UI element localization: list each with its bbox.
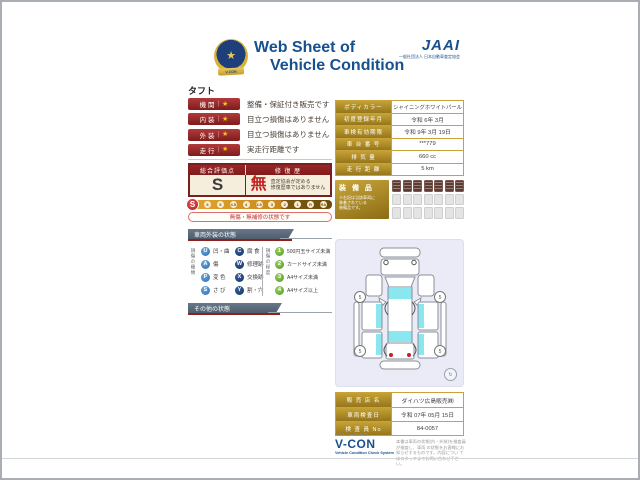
star-icon: ★ <box>222 146 228 153</box>
damage-type-label: 損傷の種類 <box>190 248 196 294</box>
jaai-subtext: 一般社団法人 日本自動車査定協会 <box>399 54 460 60</box>
damage-code-icon: X <box>235 273 244 282</box>
legend-label: 変 色 <box>213 273 226 281</box>
degree-code-icon: 4 <box>275 286 284 295</box>
tire-mark-value: 5 <box>439 349 442 355</box>
car-diagram-panel: 5 5 5 5 ↻ <box>335 239 464 387</box>
rating-label: 走 行|★ <box>188 144 240 156</box>
rear-bumper <box>380 361 420 369</box>
footer-disclaimer: 本書は車両の状態(内・外装)を検査員が検査し、車両 の状態をお客様にお知らせする… <box>396 439 466 467</box>
divider: | <box>217 101 219 107</box>
legend-item: 4A4サイズ以上 <box>275 285 330 295</box>
equipment-badge <box>424 180 433 192</box>
damage-code-icon: P <box>201 273 210 282</box>
badge-star-icon: ★ <box>226 51 236 62</box>
dealer-info-table: 販 売 店 名ダイハツ広島販売㈱ 車両検査日令和 07年 05月 15日 検 査… <box>335 392 464 436</box>
rating-label-text: 外 装 <box>200 130 215 140</box>
star-icon: ★ <box>222 101 228 108</box>
equipment-badge-empty <box>403 207 412 219</box>
equipment-badge <box>403 180 412 192</box>
evaluation-header: 総合評価点 修 復 歴 <box>190 165 330 175</box>
current-score-marker: S <box>186 198 199 211</box>
table-row: 車 台 番 号***779 <box>336 138 463 151</box>
rating-label: 内 装|★ <box>188 113 240 125</box>
legend-item: 2カードサイズ未満 <box>275 259 330 269</box>
front-window-glass <box>389 288 412 299</box>
taillight-icon <box>389 353 393 357</box>
jaai-logo: JAAI <box>422 37 460 54</box>
row-label: 車両検査日 <box>336 408 391 421</box>
front-bumper <box>380 248 420 257</box>
scale-dot: 4 <box>243 201 250 208</box>
other-section-banner: その他の状態 <box>188 303 332 313</box>
taillight-icon <box>407 353 411 357</box>
equipment-badge-empty <box>413 194 422 206</box>
damage-degree-label: 損傷の程度 <box>265 248 271 294</box>
rotate-icon[interactable]: ↻ <box>444 368 457 381</box>
equipment-badge-empty <box>424 194 433 206</box>
rear-window-glass <box>389 331 412 342</box>
damage-type-col2: C腐 食 W修理跡 X交換跡 Y割・穴 <box>235 246 264 295</box>
degree-code-icon: 3 <box>275 273 284 282</box>
table-row: 車検有効期限令和 9年 3月 19日 <box>336 125 463 138</box>
equipment-badge-empty <box>445 194 454 206</box>
scale-dot: 5 <box>217 201 224 208</box>
vcon-tagline: Vehicle Condition Check System <box>335 451 394 455</box>
rating-label-text: 内 装 <box>200 114 215 124</box>
legend-item: A傷 <box>201 259 230 269</box>
repair-history-note: 査定協会が定める 修復歴車ではありません <box>271 179 326 192</box>
vcon-logo: V-CON <box>335 437 376 451</box>
legend-item: Sさ び <box>201 285 230 295</box>
scale-dot: 2 <box>281 201 288 208</box>
damage-code-icon: U <box>201 247 210 256</box>
equipment-badge <box>445 180 454 192</box>
front-fender-right <box>418 275 434 296</box>
damage-code-icon: A <box>201 260 210 269</box>
scale-dot: 3 <box>268 201 275 208</box>
rating-label-text: 走 行 <box>200 145 215 155</box>
scale-dot: 6 <box>204 201 211 208</box>
vehicle-condition-sheet: ★ V-CON Web Sheet of Vehicle Condition J… <box>0 0 640 480</box>
exterior-section-banner: 車両外装の状態 <box>188 229 332 239</box>
car-diagram: 5 5 5 5 <box>350 247 450 379</box>
rating-row-interior: 内 装|★ 目立つ損傷はありません <box>188 113 332 125</box>
table-row: 販 売 店 名ダイハツ広島販売㈱ <box>336 393 463 407</box>
dealer-name-value: ダイハツ広島販売㈱ <box>391 393 463 407</box>
tire-mark-value: 5 <box>359 349 362 355</box>
equipment-badge-empty <box>455 194 464 206</box>
equipment-badge-empty <box>455 207 464 219</box>
scale-dot: 1 <box>294 201 301 208</box>
rating-comment: 実走行距離です <box>247 144 332 155</box>
damage-degree-list: 1500円玉サイズ未満 2カードサイズ未満 3A4サイズ未満 4A4サイズ以上 <box>275 246 330 295</box>
damage-code-icon: W <box>235 260 244 269</box>
damage-code-icon: Y <box>235 286 244 295</box>
vehicle-info-table: ボディカラーシャイニングホワイトパール 初度登録年月令和 6年 3月 車検有効期… <box>335 100 464 176</box>
degree-code-icon: 2 <box>275 260 284 269</box>
tire-mark-value: 5 <box>439 295 442 301</box>
equipment-badge-empty <box>434 194 443 206</box>
table-row: ボディカラーシャイニングホワイトパール <box>336 101 463 113</box>
legend-label: さ び <box>213 286 226 294</box>
scale-dot: RA <box>320 201 327 208</box>
equipment-badge <box>455 180 464 192</box>
equipment-badges <box>392 180 464 219</box>
sheet-title-line2: Vehicle Condition <box>270 57 404 75</box>
first-registration-value: 令和 6年 3月 <box>391 114 463 126</box>
rating-label-text: 機 関 <box>200 99 215 109</box>
rating-comment: 整備・保証付き販売です <box>247 99 332 110</box>
rating-label: 外 装|★ <box>188 129 240 141</box>
legend-item: C腐 食 <box>235 246 264 256</box>
overall-score-header: 総合評価点 <box>190 165 246 175</box>
legend-item: W修理跡 <box>235 259 264 269</box>
banner-underline <box>188 313 280 315</box>
divider: | <box>217 116 219 122</box>
table-row: 走 行 距 離5 km <box>336 163 463 176</box>
row-label: 車 台 番 号 <box>336 139 391 151</box>
legend-item: 1500円玉サイズ未満 <box>275 246 330 256</box>
scale-dot: R <box>307 201 314 208</box>
tire-mark-value: 5 <box>359 295 362 301</box>
equipment-badge-empty <box>392 207 401 219</box>
front-fender-left <box>366 275 382 296</box>
condition-note-pill: 無傷・無補修の状態です <box>188 212 332 222</box>
row-label: 初度登録年月 <box>336 114 391 126</box>
rating-comment: 目立つ損傷はありません <box>247 114 332 125</box>
equipment-badge-empty <box>403 194 412 206</box>
star-icon: ★ <box>222 116 228 123</box>
legend-label: 腐 食 <box>247 247 260 255</box>
overall-score-value: S <box>190 175 246 195</box>
rating-rows: 機 関|★ 整備・保証付き販売です 内 装|★ 目立つ損傷はありません 外 装|… <box>188 98 332 156</box>
repair-history-value: 無 <box>251 177 267 193</box>
sheet-title-line1: Web Sheet of <box>254 39 355 57</box>
equipment-title: 装 備 品 <box>339 183 385 193</box>
mileage-value: 5 km <box>391 164 463 176</box>
headlight-icon <box>384 260 388 264</box>
windshield <box>385 277 415 287</box>
score-scale-bar: 6 5 4.5 4 3.5 3 2 1 R RA <box>188 200 332 209</box>
row-label: 走 行 距 離 <box>336 164 391 176</box>
legend-label: 500円玉サイズ未満 <box>287 248 330 255</box>
vehicle-name: タフト <box>188 84 215 97</box>
inspection-date-value: 令和 07年 05月 15日 <box>391 408 463 421</box>
damage-code-icon: C <box>235 247 244 256</box>
legend-label: 傷 <box>213 260 219 268</box>
legend-label: A4サイズ未満 <box>287 274 318 281</box>
bottom-rule <box>2 458 638 459</box>
inspection-expiry-value: 令和 9年 3月 19日 <box>391 126 463 138</box>
inspector-number-value: 84-0057 <box>391 422 463 435</box>
equipment-note: ※右記は当該車両に 装着されている 装備品です。 <box>339 195 385 210</box>
door-window-glass <box>376 304 382 328</box>
door-window-glass <box>419 304 425 328</box>
equipment-label-box: 装 備 品 ※右記は当該車両に 装着されている 装備品です。 <box>335 180 389 219</box>
chassis-number-value: ***779 <box>391 139 463 151</box>
rating-row-mileage: 走 行|★ 実走行距離です <box>188 144 332 156</box>
equipment-note-line: 装備品です。 <box>339 205 363 210</box>
legend-item: Y割・穴 <box>235 285 264 295</box>
legend-divider <box>262 247 263 296</box>
legend-item: X交換跡 <box>235 272 264 282</box>
repair-note-line2: 修復歴車ではありません <box>271 185 326 191</box>
row-label: 車検有効期限 <box>336 126 391 138</box>
equipment-badge-empty <box>424 207 433 219</box>
evaluation-body: S 無 査定協会が定める 修復歴車ではありません <box>190 175 330 195</box>
table-row: 車両検査日令和 07年 05月 15日 <box>336 407 463 421</box>
equipment-badge-empty <box>392 194 401 206</box>
equipment-badge-empty <box>413 207 422 219</box>
repair-note-line1: 査定協会が定める <box>271 179 311 185</box>
rating-comment: 目立つ損傷はありません <box>247 129 332 140</box>
equipment-badge-empty <box>434 207 443 219</box>
star-icon: ★ <box>222 131 228 138</box>
degree-code-icon: 1 <box>275 247 284 256</box>
banner-underline <box>188 239 292 241</box>
table-row: 初度登録年月令和 6年 3月 <box>336 113 463 126</box>
legend-item: U凹・曲 <box>201 246 230 256</box>
equipment-badge <box>434 180 443 192</box>
legend-label: カードサイズ未満 <box>287 261 327 268</box>
row-label: 排 気 量 <box>336 151 391 163</box>
rating-row-exterior: 外 装|★ 目立つ損傷はありません <box>188 129 332 141</box>
row-label: ボディカラー <box>336 101 391 113</box>
table-row: 排 気 量660 cc <box>336 150 463 163</box>
repair-history-cell: 無 査定協会が定める 修復歴車ではありません <box>246 175 330 195</box>
body-color-value: シャイニングホワイトパール <box>391 101 463 113</box>
row-label: 販 売 店 名 <box>336 393 391 407</box>
displacement-value: 660 cc <box>391 151 463 163</box>
door-window-glass <box>419 334 425 355</box>
divider: | <box>217 132 219 138</box>
headlight-icon <box>412 260 416 264</box>
evaluation-table: 総合評価点 修 復 歴 S 無 査定協会が定める 修復歴車ではありません <box>188 163 332 197</box>
badge-ribbon: V-CON <box>218 67 244 75</box>
legend-item: P変 色 <box>201 272 230 282</box>
divider: | <box>217 147 219 153</box>
damage-type-col1: U凹・曲 A傷 P変 色 Sさ び <box>201 246 230 295</box>
legend-item: 3A4サイズ未満 <box>275 272 330 282</box>
equipment-badge <box>413 180 422 192</box>
divider-rule <box>188 159 332 160</box>
repair-history-header: 修 復 歴 <box>246 165 330 175</box>
exterior-section-title: 車両外装の状態 <box>188 229 294 239</box>
rating-label: 機 関|★ <box>188 98 240 110</box>
scale-dot: 3.5 <box>256 201 263 208</box>
equipment-badge-empty <box>445 207 454 219</box>
equipment-badge <box>392 180 401 192</box>
scale-dot: 4.5 <box>230 201 237 208</box>
legend-label: A4サイズ以上 <box>287 287 318 294</box>
damage-code-icon: S <box>201 286 210 295</box>
legend-label: 凹・曲 <box>213 247 230 255</box>
door-window-glass <box>376 334 382 355</box>
rating-row-engine: 機 関|★ 整備・保証付き販売です <box>188 98 332 110</box>
